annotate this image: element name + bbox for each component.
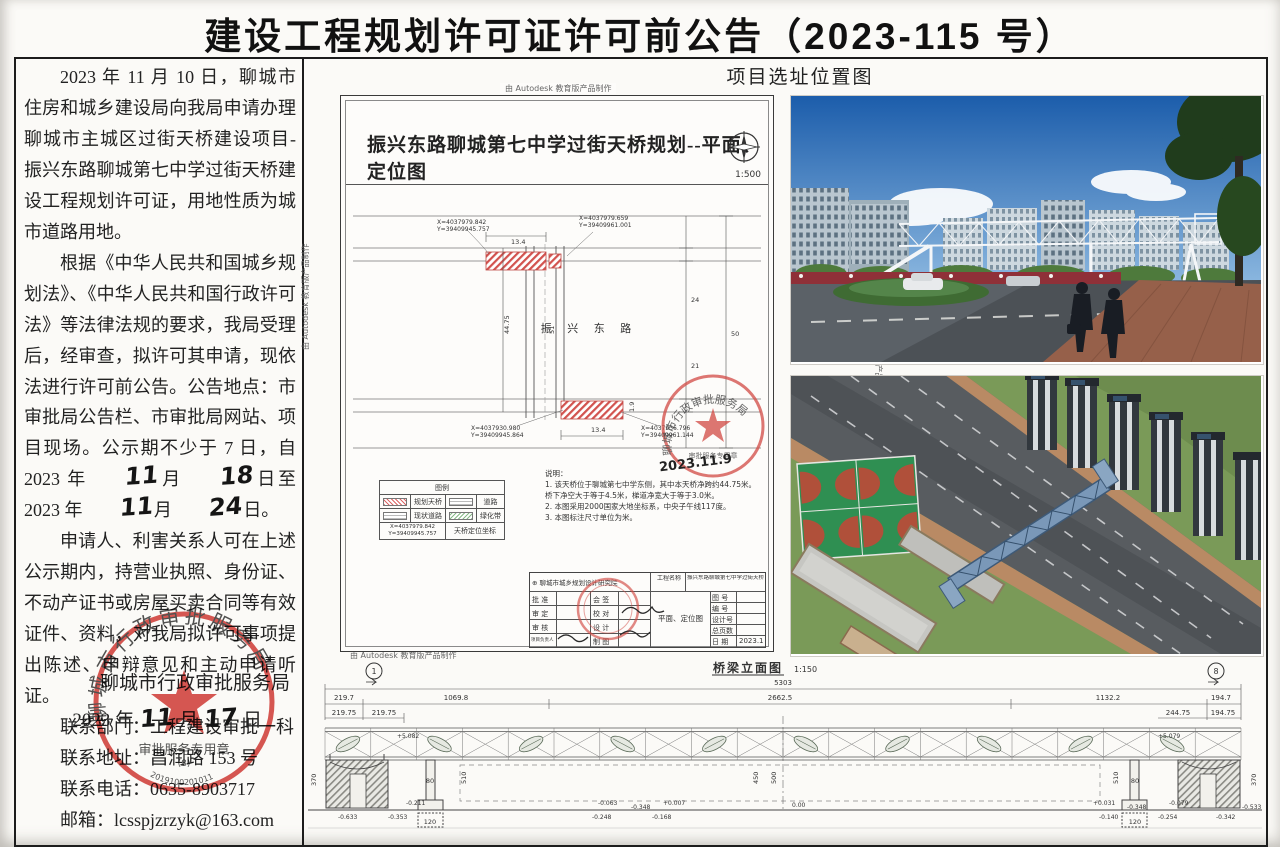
site-plan-drawing: 振 兴 东 路 X=4037979.842Y=39409945.757X=403… <box>341 96 773 651</box>
legend-label-road: 道路 <box>477 495 505 509</box>
legend-label-existing-road: 现状道路 <box>411 509 446 523</box>
svg-text:-0.348: -0.348 <box>1127 804 1147 811</box>
svg-text:X=4037930.980: X=4037930.980 <box>471 425 520 432</box>
svg-text:13.4: 13.4 <box>511 238 525 246</box>
contact-email: 邮箱：lcsspjzrzyk@163.com <box>24 805 296 836</box>
plan-legend: 图例 规划天桥 道路 现状道路 绿化带 X=4037979.842Y=39409… <box>379 480 505 540</box>
svg-text:80: 80 <box>1131 777 1139 785</box>
location-map-header: 项目选址位置图 <box>700 62 900 89</box>
titleblock-stamps <box>530 573 765 647</box>
axis-marker-right: 8 <box>1208 663 1224 685</box>
svg-text:0.00: 0.00 <box>792 802 806 809</box>
notice-paragraph-1: 2023 年 11 月 10 日，聊城市住房和城乡建设局向我局申请办理聊城市主城… <box>24 62 296 248</box>
piers <box>418 760 1147 827</box>
svg-text:8: 8 <box>1213 667 1218 676</box>
legend-coordinate-desc: 天桥定位坐标 <box>446 523 505 540</box>
street-level-render-photo <box>790 95 1264 365</box>
plan-notes: 说明： 1. 该天桥位于聊城第七中学东侧，其中本天桥净跨约44.75米。 桥下净… <box>545 468 767 523</box>
svg-text:(8): (8) <box>178 759 191 769</box>
svg-text:370: 370 <box>310 774 318 786</box>
svg-text:219.75: 219.75 <box>372 709 397 717</box>
axis-marker-left: 1 <box>366 663 382 685</box>
svg-text:194.7: 194.7 <box>1211 694 1231 702</box>
title-block: ⊕ 聊城市城乡规划设计研究院 工程名称 振兴东路聊城第七中学过街天桥 批 准 审… <box>529 572 766 648</box>
svg-text:120: 120 <box>1129 818 1141 826</box>
svg-text:13.4: 13.4 <box>591 426 605 434</box>
handwritten-day-start: 18 <box>183 475 254 480</box>
svg-text:450: 450 <box>752 772 760 784</box>
elevation-value-labels: 5303219.71069.82662.51132.2194.7219.7521… <box>310 679 1262 826</box>
svg-text:80: 80 <box>426 777 434 785</box>
bridge-elevation-drawing: 桥梁立面图 1:150 1 8 <box>300 658 1272 845</box>
legend-swatch-existing-road <box>383 512 407 520</box>
svg-text:-0.211: -0.211 <box>406 800 426 807</box>
svg-text:-0.140: -0.140 <box>1099 814 1119 821</box>
legend-swatch-greenbelt <box>449 512 473 520</box>
svg-text:219.75: 219.75 <box>332 709 357 717</box>
svg-text:120: 120 <box>424 818 436 826</box>
legend-coordinate-sample: X=4037979.842Y=39409945.757 <box>380 523 446 540</box>
note-1b: 桥下净空大于等于4.5米，梯道净宽大于等于3.0米。 <box>545 490 767 501</box>
svg-text:-0.533: -0.533 <box>1242 804 1262 811</box>
svg-text:桥梁立面图: 桥梁立面图 <box>713 660 783 675</box>
note-3: 3. 本图标注尺寸单位为米。 <box>545 512 767 523</box>
official-seal: 聊城市行政审批服务局 审批服务专用章 (8) 2019100201011 <box>88 606 280 798</box>
svg-text:-0.079: -0.079 <box>1169 800 1189 807</box>
svg-text:X=4037979.842: X=4037979.842 <box>437 219 486 226</box>
month-char: 月 <box>159 469 183 489</box>
notice-p2-end: 日。 <box>243 500 279 520</box>
svg-text:194.75: 194.75 <box>1211 709 1236 717</box>
plan-drawing-sheet: 振兴东路聊城第七中学过街天桥规划--平面、定位图 1:500 <box>340 95 774 652</box>
svg-text:+5.082: +5.082 <box>397 733 419 740</box>
svg-text:+5.079: +5.079 <box>1158 733 1180 740</box>
svg-text:50: 50 <box>731 330 739 338</box>
svg-text:244.75: 244.75 <box>1166 709 1191 717</box>
svg-text:1.9: 1.9 <box>628 402 636 412</box>
svg-text:500: 500 <box>770 772 778 784</box>
signature-squiggle-3 <box>558 635 588 642</box>
svg-text:Y=39409945.864: Y=39409945.864 <box>470 432 524 439</box>
south-stair-hatch <box>561 401 623 419</box>
legend-title: 图例 <box>380 481 505 495</box>
svg-text:510: 510 <box>1112 772 1120 784</box>
aerial-render-photo <box>790 375 1264 657</box>
legend-swatch-road <box>449 498 473 506</box>
svg-text:审批服务专用章: 审批服务专用章 <box>138 742 229 758</box>
svg-text:-0.254: -0.254 <box>1158 814 1178 821</box>
svg-text:219.7: 219.7 <box>334 694 354 702</box>
svg-text:+0.007: +0.007 <box>663 800 685 807</box>
svg-text:1:150: 1:150 <box>794 665 817 674</box>
announcement-page: 建设工程规划许可证许可前公告（2023-115 号） 2023 年 11 月 1… <box>0 0 1280 847</box>
svg-text:-0.063: -0.063 <box>598 800 618 807</box>
left-abutment <box>326 754 388 808</box>
month-char-2: 月 <box>154 500 172 520</box>
note-1: 1. 该天桥位于聊城第七中学东侧，其中本天桥净跨约44.75米。 <box>545 479 767 490</box>
signature-squiggle-1 <box>622 607 664 613</box>
svg-text:-0.168: -0.168 <box>652 814 672 821</box>
handwritten-month-start: 11 <box>88 475 159 480</box>
handwritten-day-end: 24 <box>172 506 243 511</box>
autodesk-watermark-top: 由 Autodesk 教育版产品制作 <box>500 83 616 94</box>
svg-text:+0.031: +0.031 <box>1093 800 1115 807</box>
notes-title: 说明： <box>545 468 767 479</box>
svg-text:5303: 5303 <box>774 679 792 687</box>
svg-text:-0.348: -0.348 <box>631 804 651 811</box>
svg-text:510: 510 <box>460 772 468 784</box>
svg-text:1069.8: 1069.8 <box>444 694 469 702</box>
svg-text:2662.5: 2662.5 <box>768 694 793 702</box>
svg-text:-0.342: -0.342 <box>1216 814 1236 821</box>
autodesk-watermark-left: 由 Autodesk 教育版产品制作 <box>300 244 311 350</box>
legend-label-greenbelt: 绿化带 <box>477 509 505 523</box>
handwritten-month-end: 11 <box>83 506 154 511</box>
svg-text:-0.353: -0.353 <box>388 814 408 821</box>
notice-paragraph-2: 根据《中华人民共和国城乡规划法》、《中华人民共和国行政许可法》等法律法规的要求，… <box>24 248 296 527</box>
svg-text:Y=39409945.757: Y=39409945.757 <box>436 226 490 233</box>
svg-text:Y=39409961.001: Y=39409961.001 <box>578 222 632 229</box>
seal-star <box>151 670 217 734</box>
legend-label-planned-bridge: 规划天桥 <box>411 495 446 509</box>
svg-text:1: 1 <box>371 667 376 676</box>
svg-text:370: 370 <box>1250 774 1258 786</box>
svg-text:X=4037979.659: X=4037979.659 <box>579 215 628 222</box>
notice-p2-text: 根据《中华人民共和国城乡规划法》、《中华人民共和国行政许可法》等法律法规的要求，… <box>24 253 296 490</box>
svg-text:-0.248: -0.248 <box>592 814 612 821</box>
page-title: 建设工程规划许可证许可前公告（2023-115 号） <box>0 6 1280 60</box>
svg-text:44.75: 44.75 <box>503 315 511 334</box>
north-stair-hatch <box>486 252 546 270</box>
svg-text:24: 24 <box>691 296 699 304</box>
svg-text:-0.633: -0.633 <box>338 814 358 821</box>
svg-text:51: 51 <box>548 326 556 334</box>
legend-swatch-bridge <box>383 498 407 506</box>
svg-text:21: 21 <box>691 362 699 370</box>
svg-text:1132.2: 1132.2 <box>1096 694 1121 702</box>
clearance-box <box>460 765 1100 801</box>
note-2: 2. 本图采用2000国家大地坐标系，中央子午线117度。 <box>545 501 767 512</box>
